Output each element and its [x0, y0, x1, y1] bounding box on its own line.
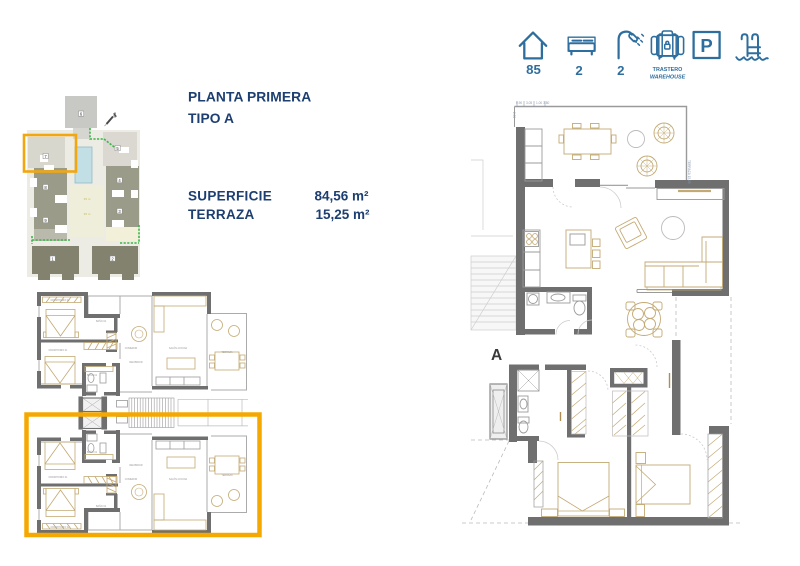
svg-text:SUPERFICIE: SUPERFICIE [188, 189, 272, 204]
svg-text:DORMITORIO 02: DORMITORIO 02 [51, 299, 70, 302]
svg-text:35 m: 35 m [84, 197, 91, 201]
svg-text:DORMITORIO 01: DORMITORIO 01 [49, 476, 68, 479]
svg-text:PLANTA PRIMERA: PLANTA PRIMERA [188, 89, 311, 104]
svg-text:RECIBIDOR: RECIBIDOR [129, 361, 143, 364]
svg-text:TERRAZA: TERRAZA [188, 207, 255, 222]
svg-text:COMEDOR: COMEDOR [125, 347, 138, 350]
svg-text:BAÑO 01: BAÑO 01 [87, 374, 98, 377]
svg-text:TERRAZA 15.25: TERRAZA 15.25 [687, 160, 691, 184]
svg-text:15,25 m²: 15,25 m² [316, 207, 371, 222]
svg-text:DORMITORIO 01: DORMITORIO 01 [49, 349, 68, 352]
svg-text:TIPO A: TIPO A [188, 111, 234, 126]
svg-text:84,56 m²: 84,56 m² [315, 189, 370, 204]
svg-text:SALÓN-COCINA: SALÓN-COCINA [169, 347, 188, 350]
svg-text:2.90: 2.90 [512, 112, 516, 118]
svg-text:WAREHOUSE: WAREHOUSE [650, 75, 686, 81]
svg-text:TRASTERO: TRASTERO [653, 67, 683, 73]
svg-text:COMEDOR: COMEDOR [125, 478, 138, 481]
svg-text:TERRAZA: TERRAZA [221, 351, 233, 354]
svg-text:BAÑO 02: BAÑO 02 [96, 505, 107, 508]
svg-text:2: 2 [575, 63, 582, 78]
svg-text:1.00 3.80: 1.00 3.80 [536, 101, 550, 105]
svg-text:TERRAZA: TERRAZA [221, 474, 233, 477]
svg-text:2: 2 [617, 63, 624, 78]
svg-text:35 m: 35 m [84, 212, 91, 216]
svg-text:85: 85 [526, 62, 541, 77]
svg-text:DORMITORIO 02: DORMITORIO 02 [51, 526, 70, 529]
svg-text:RECIBIDOR: RECIBIDOR [129, 464, 143, 467]
svg-text:BAÑO 02: BAÑO 02 [96, 320, 107, 323]
svg-text:SALÓN-COCINA: SALÓN-COCINA [169, 478, 188, 481]
svg-text:P: P [700, 35, 712, 56]
svg-text:3.05: 3.05 [526, 101, 532, 105]
svg-text:BAÑO 01: BAÑO 01 [87, 451, 98, 454]
svg-text:A: A [491, 347, 502, 364]
